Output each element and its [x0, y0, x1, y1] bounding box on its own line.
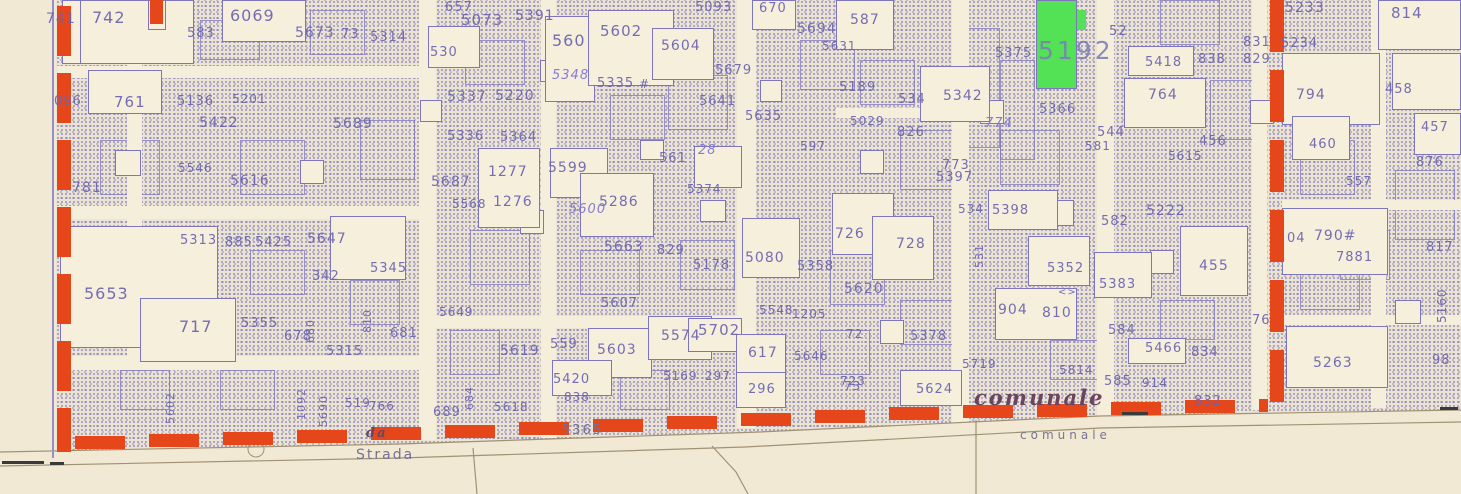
- parcel-number-label: 681: [390, 327, 418, 340]
- parcel-number-label: 5568: [452, 198, 487, 210]
- parcel-number-label: 838: [564, 391, 590, 403]
- parcel-number-label: 5635: [745, 110, 782, 123]
- parcel-number-label: 774: [985, 117, 1013, 130]
- parcel-number-label: 834: [1191, 346, 1219, 359]
- parcel-outline: [350, 280, 400, 325]
- parcel-number-label: 817: [1426, 241, 1454, 254]
- parcel-number-label: 5647: [307, 232, 347, 246]
- boundary-red-dash: [1270, 140, 1284, 192]
- parcel-outline: [450, 330, 500, 375]
- boundary-red-dash: [1259, 399, 1268, 412]
- boundary-red-dash: [445, 425, 495, 438]
- building-footprint: [300, 160, 324, 184]
- parcel-number-label: 726: [835, 227, 865, 241]
- parcel-number-label: 5689: [333, 117, 373, 131]
- parcel-number-label: 5315: [326, 345, 363, 358]
- parcel-number-label: 914: [1142, 377, 1168, 389]
- parcel-number-label: 5355: [241, 317, 278, 330]
- parcel-number-label: 5719: [962, 358, 997, 370]
- parcel-number-label: 5375: [995, 47, 1032, 60]
- parcel-number-label: 5342: [943, 89, 983, 103]
- parcel-number-label: 5624: [916, 383, 953, 396]
- parcel-outline: [250, 250, 305, 295]
- parcel-number-label: 5615: [1168, 150, 1203, 162]
- map-tick-mark: [1122, 412, 1148, 415]
- parcel-number-label: 5422: [199, 116, 239, 130]
- parcel-number-label: 5653: [84, 286, 129, 302]
- parcel-number-label: 5616: [230, 174, 270, 188]
- parcel-number-label: 794: [1296, 88, 1326, 102]
- parcel-number-label: 519: [345, 397, 371, 409]
- parcel-outline: [470, 230, 530, 285]
- boundary-red-dash: [815, 410, 865, 423]
- parcel-number-label: 5314: [370, 31, 407, 44]
- boundary-red-dash: [57, 408, 71, 452]
- boundary-red-dash: [149, 434, 199, 447]
- parcel-number-label: 5222: [1146, 204, 1186, 218]
- parcel-outline: [1000, 130, 1060, 185]
- parcel-number-label: 5080: [745, 251, 785, 265]
- parcel-number-label: 790#: [1314, 229, 1356, 243]
- parcel-number-label: 5814: [1059, 364, 1094, 376]
- parcel-number-label: 617: [748, 346, 778, 360]
- parcel-number-label: 559: [550, 338, 578, 351]
- parcel-number-label: 670: [759, 2, 787, 15]
- parcel: [478, 148, 540, 228]
- map-tick-mark: [50, 462, 64, 465]
- map-tick-mark: [1440, 407, 1458, 410]
- parcel-number-label: 597: [800, 140, 826, 152]
- boundary-red-dash: [297, 430, 347, 443]
- road-name-label: Strada: [356, 448, 414, 462]
- parcel-outline: [220, 370, 275, 410]
- parcel: [652, 28, 714, 80]
- parcel-number-label: 456: [1199, 135, 1227, 148]
- parcel-number-label: 5673: [295, 26, 335, 40]
- boundary-red-dash: [889, 407, 939, 420]
- boundary-red-dash: [667, 416, 717, 429]
- parcel-number-label: 98: [1432, 354, 1451, 367]
- parcel-number-label: 5397: [936, 171, 973, 184]
- road-name-label: da: [366, 427, 388, 440]
- parcel-number-label: 5073: [461, 13, 503, 28]
- parcel-number-label: 73: [341, 28, 360, 41]
- parcel-number-label: 5093: [695, 1, 732, 14]
- parcel-number-label: 458: [1385, 83, 1413, 96]
- parcel-number-label: 5607: [601, 297, 638, 310]
- parcel-number-label: 096: [54, 95, 82, 108]
- parcel-number-label: 741: [46, 12, 76, 26]
- parcel-number-label: 904: [998, 303, 1028, 317]
- parcel-number-label: 530: [430, 46, 458, 59]
- road-name-label: 5365: [562, 424, 603, 437]
- building-footprint: [860, 150, 884, 174]
- parcel-number-label: 460: [1309, 138, 1337, 151]
- parcel-number-label: 814: [1391, 6, 1423, 21]
- parcel-number-label: 534: [958, 203, 984, 215]
- parcel-number-label: 5029: [850, 115, 885, 127]
- parcel-number-label: 717: [179, 319, 213, 335]
- map-frame-line: [52, 0, 54, 458]
- parcel-number-label: 5358: [797, 260, 834, 273]
- parcel-number-label: 5694: [797, 22, 837, 36]
- parcel-number-label: 5618: [494, 401, 529, 413]
- parcel-number-label: 5378: [910, 330, 947, 343]
- parcel-number-label: 5466: [1145, 342, 1182, 355]
- parcel-number-label: 5136: [177, 95, 214, 108]
- parcel-number-label: 5646: [794, 350, 829, 362]
- parcel: [1124, 78, 1206, 128]
- parcel-number-label: 1205: [792, 308, 827, 320]
- parcel-number-label: 5679: [715, 64, 752, 77]
- parcel-number-label: 534: [898, 93, 926, 106]
- parcel-number-label: 297: [705, 370, 731, 382]
- parcel-number-label: 766: [369, 400, 395, 412]
- map-canvas[interactable]: 5192 74174258360695673735314657507353915…: [0, 0, 1461, 494]
- parcel-number-label: 5364: [500, 131, 537, 144]
- parcel-number-label: 583: [187, 27, 215, 40]
- parcel-number-label: 5604: [661, 39, 701, 53]
- parcel-number-label: 5383: [1099, 278, 1136, 291]
- parcel-number-label: 5600: [569, 203, 606, 216]
- parcel-number-label: 73: [844, 380, 861, 392]
- parcel-number-label: 5641: [699, 95, 736, 108]
- street-horizontal: [57, 356, 427, 370]
- parcel-number-label: 587: [850, 13, 880, 27]
- parcel-outline: [1160, 0, 1220, 45]
- building-footprint: [880, 320, 904, 344]
- parcel-number-label: 5366: [1039, 103, 1076, 116]
- parcel-number-label: 544: [1097, 126, 1125, 139]
- parcel-number-label: 5335: [597, 77, 634, 90]
- parcel-number-label: 5602: [165, 392, 176, 424]
- parcel-number-label: 72: [846, 328, 863, 340]
- parcel-number-label: 5619: [500, 344, 540, 358]
- parcel-number-label: 5603: [597, 343, 637, 357]
- parcel: [742, 218, 800, 278]
- parcel-number-label: 1276: [493, 195, 533, 209]
- parcel-number-label: 342: [312, 270, 340, 283]
- parcel-outline: [120, 370, 170, 410]
- building-footprint: [1395, 300, 1421, 324]
- parcel-outline: [610, 95, 665, 140]
- parcel-number-label: 680: [305, 319, 316, 343]
- parcel-number-label: 5398: [992, 204, 1029, 217]
- parcel-number-label: 5160: [1436, 288, 1448, 323]
- boundary-red-dash: [1270, 280, 1284, 332]
- parcel-number-label: 742: [92, 10, 126, 26]
- parcel-number-label: 5178: [693, 259, 730, 272]
- parcel-number-label: 5313: [180, 234, 217, 247]
- parcel-outline: [580, 250, 640, 295]
- building-footprint: [1150, 250, 1174, 274]
- parcel-number-label: 728: [896, 237, 926, 251]
- parcel-outline: [1210, 80, 1255, 140]
- parcel-number-label: 5631: [822, 40, 857, 52]
- boundary-red-dash: [741, 413, 791, 426]
- map-tick-mark: [2, 461, 44, 464]
- parcel-number-label: 5425: [255, 236, 292, 249]
- parcel-number-label: 5574: [661, 329, 701, 343]
- parcel-number-label: 689: [433, 406, 461, 419]
- parcel-number-label: 831: [1243, 36, 1271, 49]
- highlighted-parcel-label: 5192: [1038, 38, 1114, 63]
- parcel-number-label: 581: [1085, 140, 1111, 152]
- parcel-number-label: 585: [1104, 375, 1132, 388]
- map-margin: [0, 0, 56, 494]
- parcel-number-label: 6069: [230, 8, 275, 24]
- building-footprint: [420, 100, 442, 122]
- boundary-red-dash: [1270, 70, 1284, 122]
- parcel-number-label: 764: [1148, 88, 1178, 102]
- parcel-number-label: 5263: [1313, 356, 1353, 370]
- parcel-number-label: 1277: [488, 165, 528, 179]
- parcel-number-label: 761: [114, 95, 146, 110]
- parcel-number-label: 5234: [1281, 37, 1318, 50]
- parcel-number-label: 5702: [698, 323, 740, 338]
- parcel-number-label: 76: [1252, 314, 1271, 327]
- parcel-number-label: 455: [1199, 259, 1229, 273]
- parcel-number-label: 5420: [553, 373, 590, 386]
- boundary-red-dash: [57, 341, 71, 391]
- parcel-number-label: 5201: [232, 93, 267, 105]
- parcel-number-label: 557: [1346, 175, 1372, 187]
- parcel-number-label: 5345: [370, 262, 407, 275]
- building-footprint: [115, 150, 141, 176]
- parcel-number-label: 5233: [1285, 1, 1325, 15]
- boundary-red-dash: [223, 432, 273, 445]
- boundary-red-dash: [57, 207, 71, 257]
- parcel-number-label: 5352: [1047, 262, 1084, 275]
- parcel-number-label: 832: [1194, 395, 1222, 408]
- parcel-number-label: 5336: [447, 130, 484, 143]
- boundary-red-dash: [150, 0, 163, 24]
- parcel-number-label: 826: [897, 126, 925, 139]
- road-name-label: comunale: [1020, 429, 1111, 441]
- boundary-red-dash: [57, 140, 71, 190]
- parcel-number-label: 5649: [439, 306, 474, 318]
- parcel-number-label: 28: [698, 144, 717, 157]
- parcel-number-label: 561: [659, 152, 687, 165]
- parcel-number-label: 296: [748, 383, 776, 396]
- parcel-number-label: 781: [72, 181, 102, 195]
- boundary-red-dash: [75, 436, 125, 449]
- parcel-number-label: 584: [1108, 324, 1136, 337]
- parcel-number-label: 52: [1109, 25, 1128, 38]
- building-footprint: [760, 80, 782, 102]
- parcel-number-label: 838: [1198, 53, 1226, 66]
- parcel-number-label: 582: [1101, 215, 1129, 228]
- parcel-number-label: 5548: [759, 304, 794, 316]
- parcel-number-label: 5663: [604, 240, 644, 254]
- road-name-label: comunale: [974, 387, 1105, 408]
- parcel-number-label: #: [639, 78, 650, 90]
- parcel-number-label: 5418: [1145, 56, 1182, 69]
- parcel-number-label: 810: [362, 309, 373, 333]
- parcel-number-label: 5337: [447, 90, 487, 104]
- parcel-number-label: 7881: [1336, 251, 1373, 264]
- parcel-number-label: 829: [657, 244, 685, 257]
- parcel-number-label: 1092: [296, 388, 307, 420]
- boundary-red-dash: [1270, 210, 1284, 262]
- parcel-number-label: 5348: [552, 69, 589, 82]
- parcel-number-label: 560: [552, 33, 586, 49]
- boundary-red-dash: [57, 274, 71, 324]
- parcel-number-label: 684: [464, 386, 475, 410]
- parcel-number-label: 5687: [431, 175, 471, 189]
- highlighted-parcel-notch: [1077, 10, 1086, 30]
- boundary-red-dash: [1270, 350, 1284, 402]
- parcel-number-label: 457: [1421, 121, 1449, 134]
- parcel-number-label: 5690: [318, 395, 329, 427]
- parcel-number-label: 5620: [844, 282, 884, 296]
- parcel-number-label: 810: [1042, 306, 1072, 320]
- parcel-number-label: 876: [1416, 156, 1444, 169]
- parcel-number-label: 829: [1243, 53, 1271, 66]
- parcel-number-label: 5374: [687, 183, 722, 195]
- parcel-number-label: 5220: [495, 89, 535, 103]
- parcel-number-label: 885: [225, 236, 253, 249]
- parcel-number-label: 5599: [548, 161, 588, 175]
- parcel-number-label: 5391: [515, 9, 555, 23]
- parcel-number-label: 5169: [663, 370, 698, 382]
- parcel-number-label: 04: [1287, 232, 1306, 245]
- building-footprint: [700, 200, 726, 222]
- parcel-number-label: <>: [1058, 288, 1077, 298]
- parcel-number-label: 5189: [839, 81, 876, 94]
- parcel-number-label: 531: [974, 244, 985, 268]
- parcel-number-label: 5602: [600, 24, 642, 39]
- parcel-outline: [1160, 300, 1215, 340]
- parcel-number-label: 5546: [178, 162, 213, 174]
